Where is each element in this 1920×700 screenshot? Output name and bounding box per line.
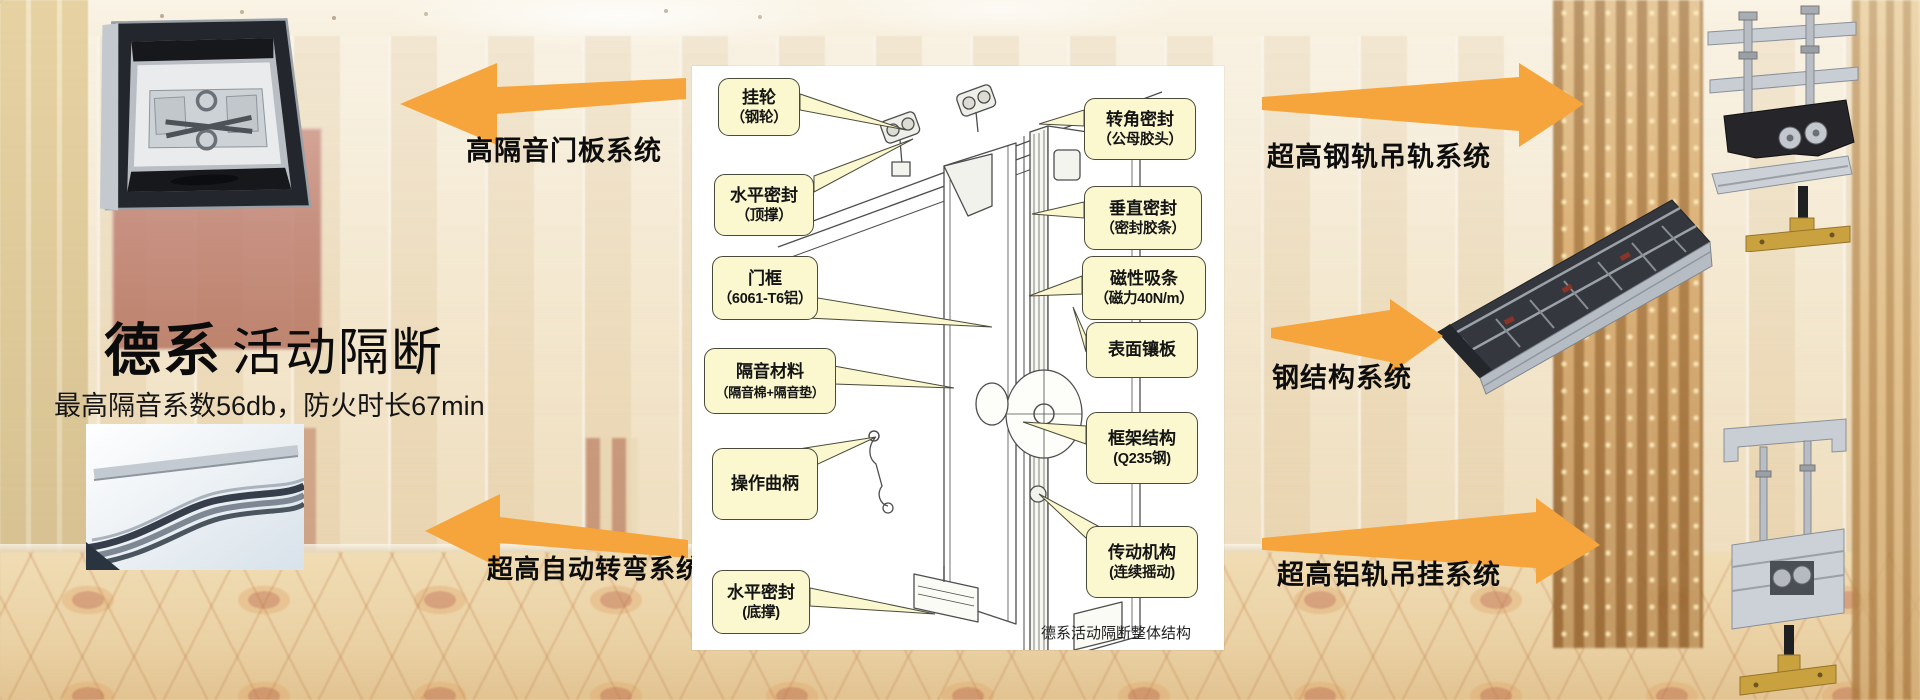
label-door-panel-system: 高隔音门板系统 xyxy=(466,129,662,168)
callout-text: 框架结构 xyxy=(1108,428,1176,450)
callout-text: 水平密封 xyxy=(727,582,795,604)
product-name: 活动隔断 xyxy=(232,324,444,381)
page-title: 德系活动隔断 xyxy=(104,305,444,387)
callout-subtext: （6061-T6铝） xyxy=(718,290,813,309)
label-steel-structure-system: 钢结构系统 xyxy=(1272,356,1412,395)
callout-corner-seal: 转角密封 （公母胶头） xyxy=(1084,98,1196,160)
callout-text: 隔音材料 xyxy=(736,361,804,383)
callout-subtext: （隔音棉+隔音垫） xyxy=(716,383,825,402)
callout-subtext: (Q235钢) xyxy=(1113,450,1171,469)
callout-frame-structure: 框架结构 (Q235钢) xyxy=(1086,412,1198,484)
structure-diagram: 挂轮 （钢轮） 水平密封 （顶撑） 门框 （6061-T6铝） 隔音材料 （隔音… xyxy=(692,66,1224,650)
callout-door-frame: 门框 （6061-T6铝） xyxy=(712,256,818,320)
label-auto-turning-system: 超高自动转弯系统 xyxy=(487,549,703,586)
performance-subtitle: 最高隔音系数56db，防火时长67min xyxy=(54,384,485,423)
callout-horizontal-seal-bottom: 水平密封 (底撑) xyxy=(712,570,810,634)
callout-hanger-wheel: 挂轮 （钢轮） xyxy=(718,78,800,136)
callout-text: 门框 xyxy=(748,268,782,290)
callout-subtext: （公母胶头） xyxy=(1097,131,1182,150)
marketing-slide: 高隔音门板系统 超高自动转弯系统 超高钢轨吊轨系统 钢结构系统 超高铝轨吊挂系统… xyxy=(0,0,1920,700)
callout-subtext: （磁力40N/m） xyxy=(1095,290,1194,309)
callout-subtext: (底撑) xyxy=(742,604,779,623)
callout-magnetic-strip: 磁性吸条 （磁力40N/m） xyxy=(1082,256,1206,320)
photo-door-panel-mechanism xyxy=(80,0,324,258)
label-steel-rail-system: 超高钢轨吊轨系统 xyxy=(1267,135,1491,174)
callout-text: 磁性吸条 xyxy=(1110,268,1178,290)
label-aluminum-rail-system: 超高铝轨吊挂系统 xyxy=(1277,553,1501,592)
callout-text: 操作曲柄 xyxy=(731,473,799,495)
red-wall-strip xyxy=(586,438,638,556)
photo-aluminum-rail-hanger xyxy=(1718,415,1858,700)
callout-vertical-seal: 垂直密封 （密封胶条） xyxy=(1084,186,1202,250)
photo-steel-rail-hanger xyxy=(1698,4,1866,252)
callout-subtext: （钢轮） xyxy=(731,109,788,128)
callout-horizontal-seal-top: 水平密封 （顶撑） xyxy=(714,174,814,236)
brand-name: 德系 xyxy=(104,319,222,383)
callout-text: 传动机构 xyxy=(1108,542,1176,564)
callout-subtext: (连续摇动) xyxy=(1109,564,1175,583)
callout-text: 转角密封 xyxy=(1106,109,1174,131)
callout-sound-insulation: 隔音材料 （隔音棉+隔音垫） xyxy=(704,348,836,414)
callout-text: 表面镶板 xyxy=(1108,339,1176,361)
callout-text: 垂直密封 xyxy=(1109,198,1177,220)
photo-curved-track xyxy=(86,424,304,570)
callout-subtext: （密封胶条） xyxy=(1100,220,1185,239)
callout-operating-crank: 操作曲柄 xyxy=(712,448,818,520)
diagram-caption: 德系活动隔断整体结构 xyxy=(1028,622,1204,643)
callout-subtext: （顶撑） xyxy=(736,207,793,226)
photo-steel-structure xyxy=(1434,190,1719,395)
callout-transmission: 传动机构 (连续摇动) xyxy=(1086,526,1198,598)
callout-text: 挂轮 xyxy=(742,87,776,109)
callout-surface-panel: 表面镶板 xyxy=(1086,322,1198,378)
callout-text: 水平密封 xyxy=(730,185,798,207)
